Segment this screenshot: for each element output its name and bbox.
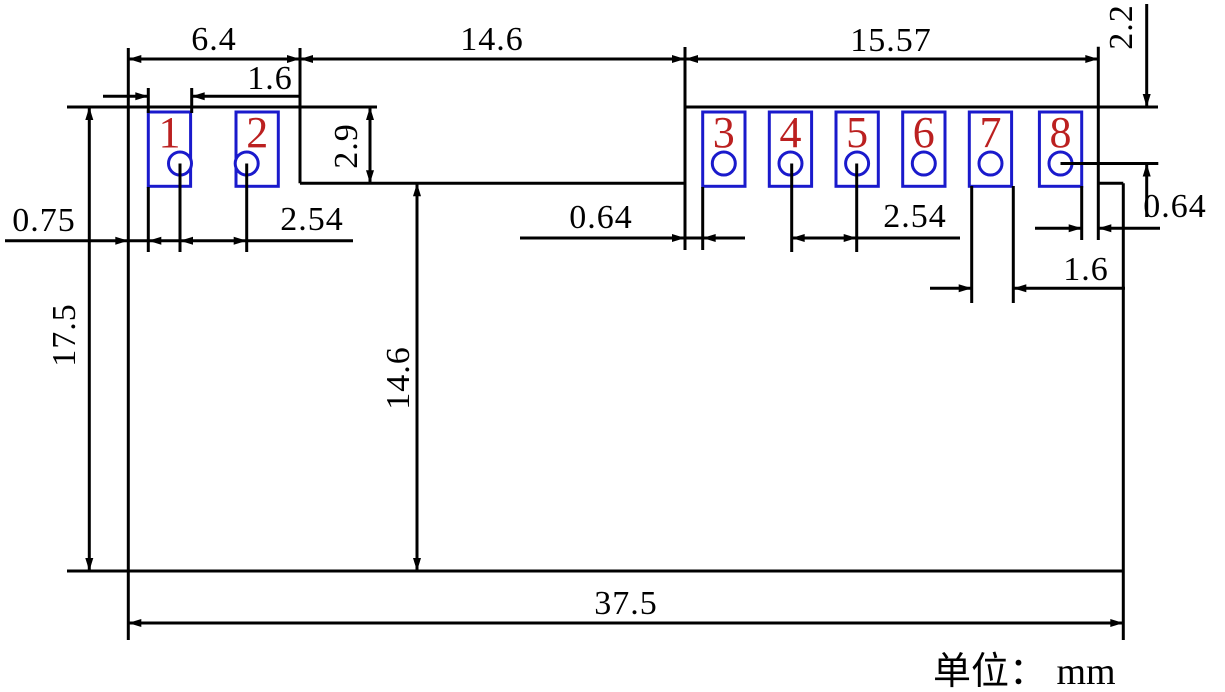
arrowhead [703,234,716,242]
pad-5-number: 5 [846,108,868,157]
dimension-drawing-page: 1 2 3 4 5 6 7 [0,0,1225,692]
dim-label-overall-height: 17.5 [46,303,83,367]
arrowhead [135,92,148,100]
dim-label-pad-section-height: 2.9 [328,123,365,169]
pad-2: 2 [235,108,278,186]
pad-6-number: 6 [913,108,935,157]
arrowhead [1143,94,1151,107]
arrowhead [844,234,857,242]
dim-label-hole8-offset: 2.2 [1103,4,1140,50]
arrowhead [148,237,161,245]
arrowhead [366,107,374,120]
arrowhead [1069,224,1082,232]
pad-1: 1 [148,108,191,186]
pad-7: 7 [969,108,1011,186]
dim-label-right-gap: 0.64 [1143,188,1207,225]
dim-label-top-right-width: 15.57 [850,22,932,59]
arrowhead [300,55,313,63]
pad-8: 8 [1039,108,1081,186]
arrowhead [413,183,421,196]
arrowhead [1013,284,1026,292]
arrowhead [128,619,141,627]
arrowhead [1110,619,1123,627]
pad-7-number: 7 [980,108,1002,157]
pad-2-number: 2 [246,108,268,157]
dim-label-mid-gap: 0.64 [569,199,633,236]
arrowhead [85,107,93,120]
arrowhead [685,55,698,63]
dimension-lines [5,4,1160,623]
arrowhead [366,170,374,183]
arrowhead [959,284,972,292]
arrowhead [672,234,685,242]
pad-6: 6 [903,108,945,186]
pads: 1 2 3 4 5 6 7 [148,108,1081,186]
dim-label-left-pitch: 2.54 [280,201,344,238]
pad-1-number: 1 [159,108,181,157]
dim-label-right-pitch: 2.54 [883,198,947,235]
footprint-dimension-drawing: 1 2 3 4 5 6 7 [0,0,1225,692]
pad-4-number: 4 [780,108,802,157]
arrowhead [115,237,128,245]
arrowhead [1085,55,1098,63]
pad-3-number: 3 [713,108,735,157]
dim-label-top-left-width: 6.4 [191,21,237,58]
dim-label-body-height: 14.6 [380,346,417,410]
dim-label-top-middle-width: 14.6 [460,21,524,58]
arrowhead [413,558,421,571]
dim-label-left-margin: 0.75 [12,202,76,239]
dim-label-overall-width: 37.5 [594,585,658,622]
arrowhead [180,237,193,245]
arrowhead [85,558,93,571]
arrowhead [792,234,805,242]
dim-label-pad7-width: 1.6 [1063,251,1109,288]
unit-note: 单位： mm [933,651,1116,692]
dim-label-pad1-width: 1.6 [247,60,293,97]
arrowhead [1143,164,1151,177]
arrowhead [192,92,205,100]
pad-3: 3 [703,108,745,186]
arrowhead [234,237,247,245]
arrowhead [672,55,685,63]
pad-8-number: 8 [1050,108,1072,157]
arrowhead [128,55,141,63]
arrowhead [1098,224,1111,232]
